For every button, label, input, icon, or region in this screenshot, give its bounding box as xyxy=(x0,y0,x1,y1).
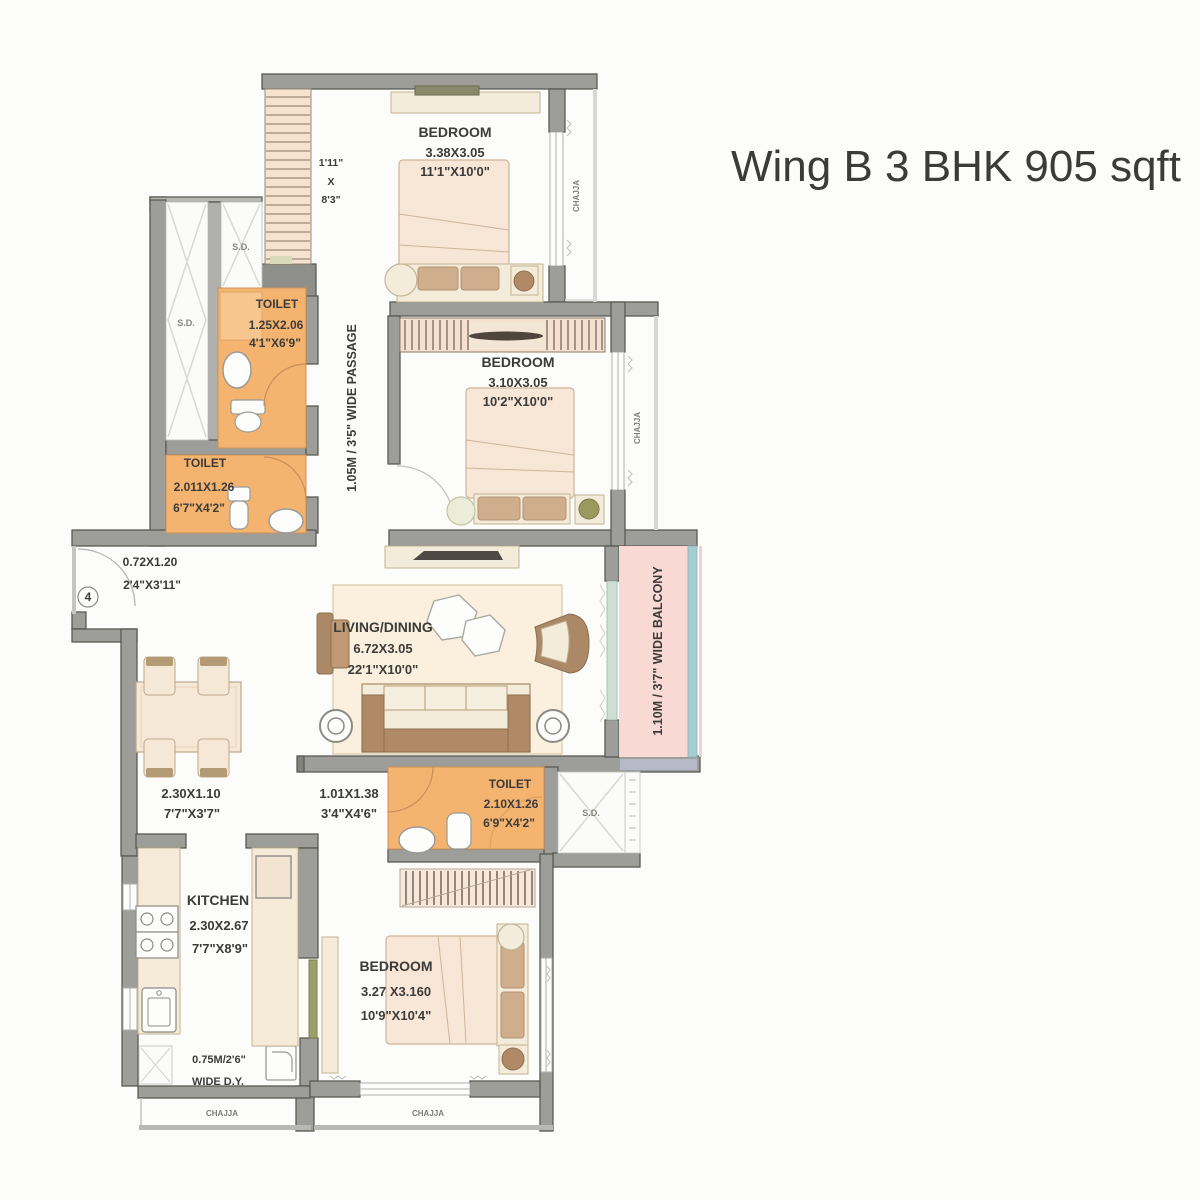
svg-text:1'11": 1'11" xyxy=(319,157,343,169)
svg-text:CHAJJA: CHAJJA xyxy=(412,1109,444,1118)
svg-text:10'2"X10'0": 10'2"X10'0" xyxy=(483,394,554,409)
svg-text:4: 4 xyxy=(85,590,92,604)
svg-text:6.72X3.05: 6.72X3.05 xyxy=(353,641,412,656)
svg-text:TOILET: TOILET xyxy=(256,297,299,311)
svg-text:TOILET: TOILET xyxy=(489,777,532,791)
svg-text:BEDROOM: BEDROOM xyxy=(481,354,554,370)
svg-text:S.D.: S.D. xyxy=(177,318,195,328)
svg-text:CHAJJA: CHAJJA xyxy=(572,180,581,212)
svg-text:2'4"X3'11": 2'4"X3'11" xyxy=(123,578,181,592)
svg-text:1.01X1.38: 1.01X1.38 xyxy=(319,786,378,801)
svg-text:S.D.: S.D. xyxy=(582,808,600,818)
svg-text:CHAJJA: CHAJJA xyxy=(633,412,642,444)
svg-text:Wing B 3 BHK 905 sqft: Wing B 3 BHK 905 sqft xyxy=(731,142,1181,191)
svg-text:LIVING/DINING: LIVING/DINING xyxy=(333,619,433,635)
svg-text:0.72X1.20: 0.72X1.20 xyxy=(123,555,178,569)
svg-text:WIDE D.Y.: WIDE D.Y. xyxy=(192,1076,244,1088)
svg-text:10'9"X10'4": 10'9"X10'4" xyxy=(361,1008,432,1023)
svg-text:TOILET: TOILET xyxy=(184,456,227,470)
svg-text:0.75M/2'6": 0.75M/2'6" xyxy=(192,1054,246,1066)
svg-text:8'3": 8'3" xyxy=(321,194,340,206)
svg-text:X: X xyxy=(327,176,334,188)
svg-text:22'1"X10'0": 22'1"X10'0" xyxy=(348,662,419,677)
svg-text:CHAJJA: CHAJJA xyxy=(206,1109,238,1118)
svg-text:7'7"X8'9": 7'7"X8'9" xyxy=(192,941,248,956)
svg-text:BEDROOM: BEDROOM xyxy=(418,124,491,140)
svg-text:4'1"X6'9": 4'1"X6'9" xyxy=(249,336,301,350)
svg-text:3.10X3.05: 3.10X3.05 xyxy=(488,375,547,390)
svg-text:2.30X1.10: 2.30X1.10 xyxy=(161,786,220,801)
svg-text:11'1"X10'0": 11'1"X10'0" xyxy=(420,164,490,179)
svg-text:1.05M / 3'5" WIDE PASSAGE: 1.05M / 3'5" WIDE PASSAGE xyxy=(345,324,359,492)
svg-text:7'7"X3'7": 7'7"X3'7" xyxy=(164,806,220,821)
svg-text:1.10M / 3'7" WIDE BALCONY: 1.10M / 3'7" WIDE BALCONY xyxy=(651,566,665,736)
svg-text:3.27 X3.160: 3.27 X3.160 xyxy=(361,984,431,999)
svg-text:BEDROOM: BEDROOM xyxy=(359,958,432,974)
svg-text:3'4"X4'6": 3'4"X4'6" xyxy=(321,806,377,821)
svg-text:S.D.: S.D. xyxy=(232,242,250,252)
svg-text:1.25X2.06: 1.25X2.06 xyxy=(249,318,304,332)
svg-text:KITCHEN: KITCHEN xyxy=(187,892,249,908)
svg-text:6'7"X4'2": 6'7"X4'2" xyxy=(173,501,225,515)
svg-text:6'9"X4'2": 6'9"X4'2" xyxy=(483,816,535,830)
svg-text:2.011X1.26: 2.011X1.26 xyxy=(174,480,235,494)
svg-text:3.38X3.05: 3.38X3.05 xyxy=(425,145,484,160)
svg-text:2.10X1.26: 2.10X1.26 xyxy=(484,797,539,811)
svg-text:2.30X2.67: 2.30X2.67 xyxy=(189,918,248,933)
